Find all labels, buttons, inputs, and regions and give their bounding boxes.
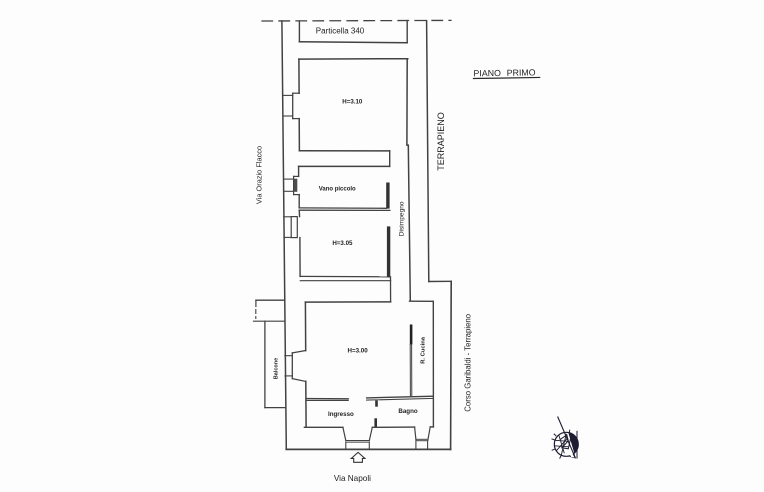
svg-text:Corso Garibaldi - Terrapieno: Corso Garibaldi - Terrapieno xyxy=(463,313,472,411)
svg-text:Via Napoli: Via Napoli xyxy=(334,474,371,483)
svg-text:Bagno: Bagno xyxy=(398,408,417,415)
svg-text:Disimpegno: Disimpegno xyxy=(398,201,405,236)
svg-text:PIANO PRIMO: PIANO PRIMO xyxy=(473,67,535,78)
svg-text:Particella 340: Particella 340 xyxy=(316,26,365,35)
svg-text:TERRAPIENO: TERRAPIENO xyxy=(436,112,446,171)
svg-text:H=3.00: H=3.00 xyxy=(348,348,369,355)
svg-text:H=3.05: H=3.05 xyxy=(332,240,353,247)
svg-text:Balcone: Balcone xyxy=(274,358,280,379)
svg-text:H=3.10: H=3.10 xyxy=(342,98,363,105)
svg-text:Via Orazio Flacco: Via Orazio Flacco xyxy=(255,146,264,204)
svg-text:R. Cucina: R. Cucina xyxy=(421,336,427,364)
svg-text:Vano piccolo: Vano piccolo xyxy=(319,187,356,193)
svg-text:Ingresso: Ingresso xyxy=(328,411,354,418)
